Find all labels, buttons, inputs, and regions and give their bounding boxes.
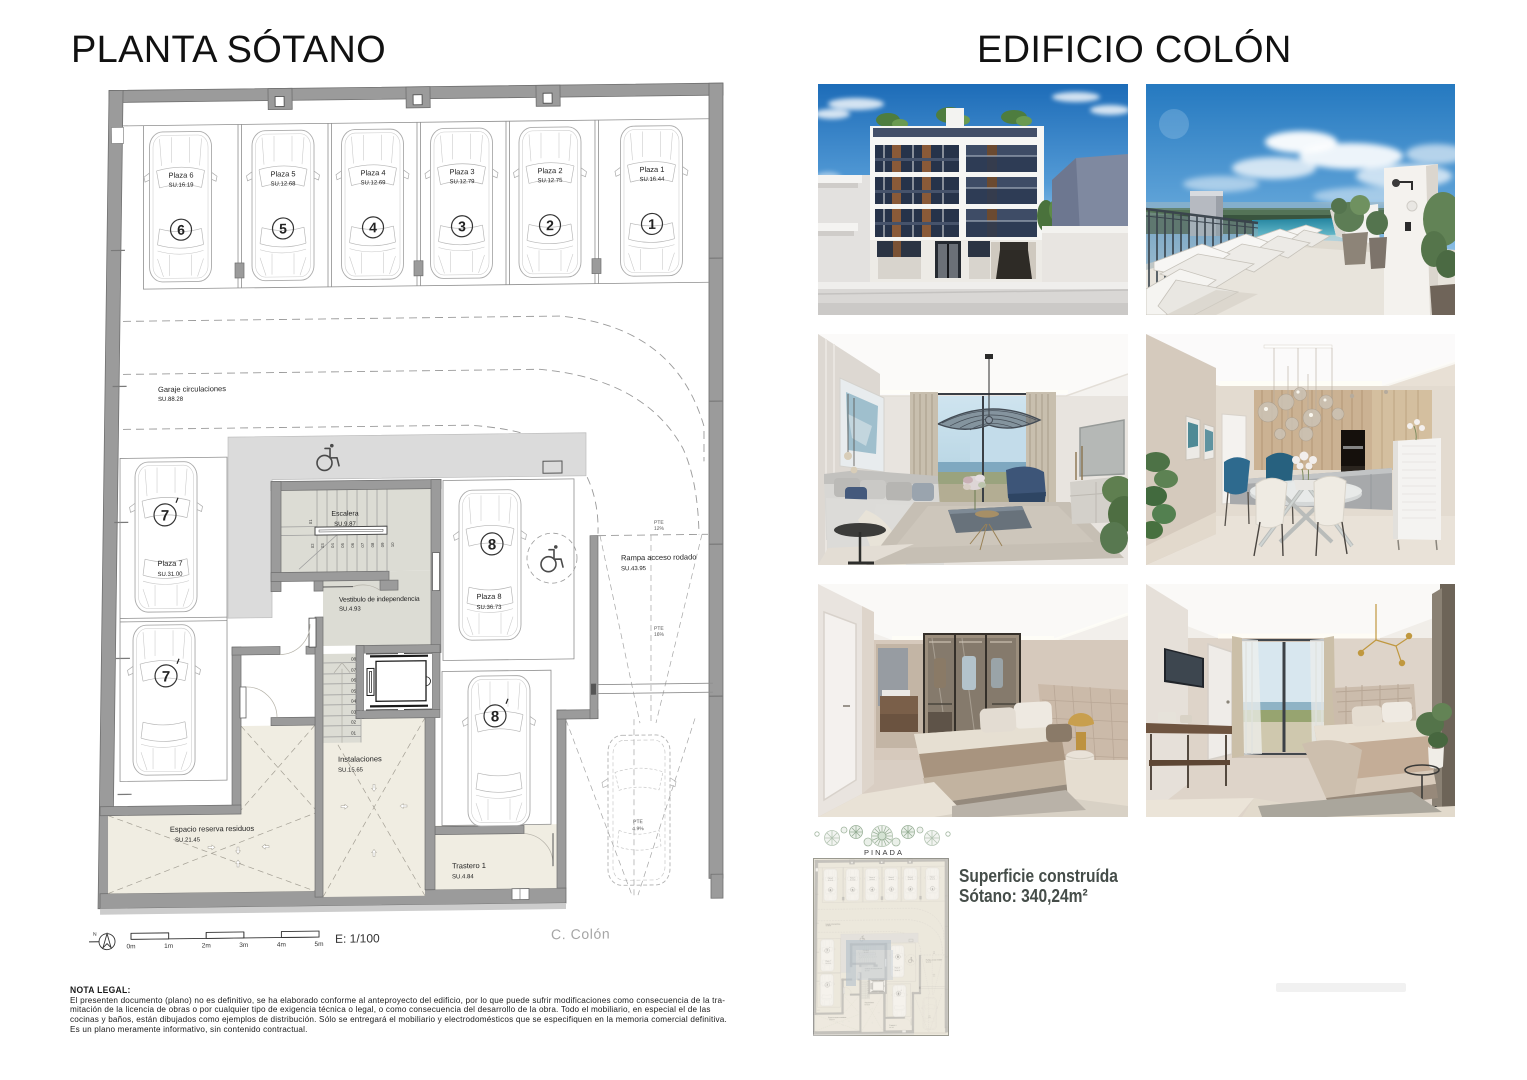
svg-text:3m: 3m — [239, 942, 248, 949]
svg-text:01: 01 — [351, 731, 357, 736]
svg-text:06: 06 — [350, 542, 355, 547]
svg-text:PTE: PTE — [633, 819, 643, 825]
svg-text:E: 1/100: E: 1/100 — [335, 931, 380, 946]
svg-text:SU.12.79: SU.12.79 — [449, 179, 475, 185]
svg-text:SU.9.87: SU.9.87 — [334, 522, 356, 528]
svg-text:SU.16.44: SU.16.44 — [639, 177, 665, 183]
svg-text:8: 8 — [488, 536, 496, 553]
svg-text:Rampa acceso rodado: Rampa acceso rodado — [621, 552, 696, 562]
svg-text:3: 3 — [458, 218, 466, 234]
svg-text:4m: 4m — [277, 941, 286, 948]
svg-text:12%: 12% — [654, 526, 665, 532]
svg-text:09: 09 — [380, 542, 385, 547]
svg-text:8: 8 — [491, 708, 499, 725]
svg-text:SU.36.73: SU.36.73 — [476, 605, 502, 611]
svg-text:Garaje circulaciones: Garaje circulaciones — [158, 384, 226, 394]
svg-text:SU.88.28: SU.88.28 — [158, 397, 184, 403]
svg-text:01: 01 — [308, 519, 313, 524]
svg-text:1m: 1m — [164, 943, 173, 950]
svg-text:Espacio reserva residuos: Espacio reserva residuos — [170, 824, 254, 834]
svg-text:SU.12.68: SU.12.68 — [270, 181, 296, 187]
svg-text:Plaza 8: Plaza 8 — [476, 592, 501, 601]
svg-text:08: 08 — [351, 657, 357, 662]
svg-text:Plaza 3: Plaza 3 — [449, 167, 474, 176]
svg-text:Plaza 2: Plaza 2 — [537, 166, 562, 175]
svg-text:7: 7 — [161, 507, 169, 524]
svg-text:08: 08 — [370, 542, 375, 547]
svg-text:N: N — [93, 932, 97, 938]
svg-text:4.9%: 4.9% — [632, 826, 644, 832]
svg-text:05: 05 — [351, 689, 357, 694]
svg-text:6: 6 — [177, 222, 185, 238]
svg-text:C. Colón: C. Colón — [551, 925, 610, 942]
svg-text:03: 03 — [351, 710, 357, 715]
svg-text:07: 07 — [360, 542, 365, 547]
svg-text:4: 4 — [369, 219, 377, 235]
svg-text:05: 05 — [340, 542, 345, 547]
svg-text:Plaza 1: Plaza 1 — [639, 165, 664, 174]
svg-text:5m: 5m — [315, 941, 324, 948]
svg-text:7: 7 — [162, 668, 170, 685]
svg-text:SU.4.84: SU.4.84 — [452, 874, 474, 880]
svg-text:SU.15.65: SU.15.65 — [338, 767, 364, 773]
svg-text:06: 06 — [351, 678, 357, 683]
svg-text:SU.43.95: SU.43.95 — [621, 566, 647, 572]
svg-text:0m: 0m — [127, 943, 136, 950]
svg-text:2: 2 — [546, 217, 554, 233]
svg-text:SU.4.93: SU.4.93 — [339, 607, 361, 613]
svg-text:Plaza 5: Plaza 5 — [270, 169, 295, 178]
svg-text:07: 07 — [351, 668, 357, 673]
svg-text:SU.12.69: SU.12.69 — [360, 180, 386, 186]
svg-text:Plaza 7: Plaza 7 — [158, 559, 183, 568]
svg-text:16%: 16% — [654, 632, 665, 638]
svg-text:SU.31.00: SU.31.00 — [158, 572, 184, 578]
svg-text:SU.21.45: SU.21.45 — [175, 837, 201, 843]
svg-text:02: 02 — [351, 720, 357, 725]
svg-text:PINADA: PINADA — [864, 848, 904, 857]
svg-text:Plaza 4: Plaza 4 — [360, 168, 385, 177]
svg-text:Instalaciones: Instalaciones — [338, 754, 382, 764]
svg-text:1: 1 — [648, 216, 656, 232]
svg-text:Escalera: Escalera — [331, 511, 358, 518]
svg-text:02: 02 — [310, 543, 315, 548]
svg-text:10: 10 — [390, 542, 395, 547]
svg-text:2m: 2m — [202, 942, 211, 949]
svg-text:5: 5 — [279, 220, 287, 236]
svg-text:SU.16.19: SU.16.19 — [169, 183, 195, 189]
svg-text:04: 04 — [330, 542, 335, 547]
svg-text:SU.12.75: SU.12.75 — [537, 178, 563, 184]
svg-text:Vestibulo de independencia: Vestibulo de independencia — [339, 596, 420, 604]
svg-text:Plaza 6: Plaza 6 — [169, 171, 194, 180]
svg-text:Trastero 1: Trastero 1 — [452, 861, 486, 870]
svg-text:03: 03 — [320, 543, 325, 548]
svg-text:04: 04 — [351, 699, 357, 704]
